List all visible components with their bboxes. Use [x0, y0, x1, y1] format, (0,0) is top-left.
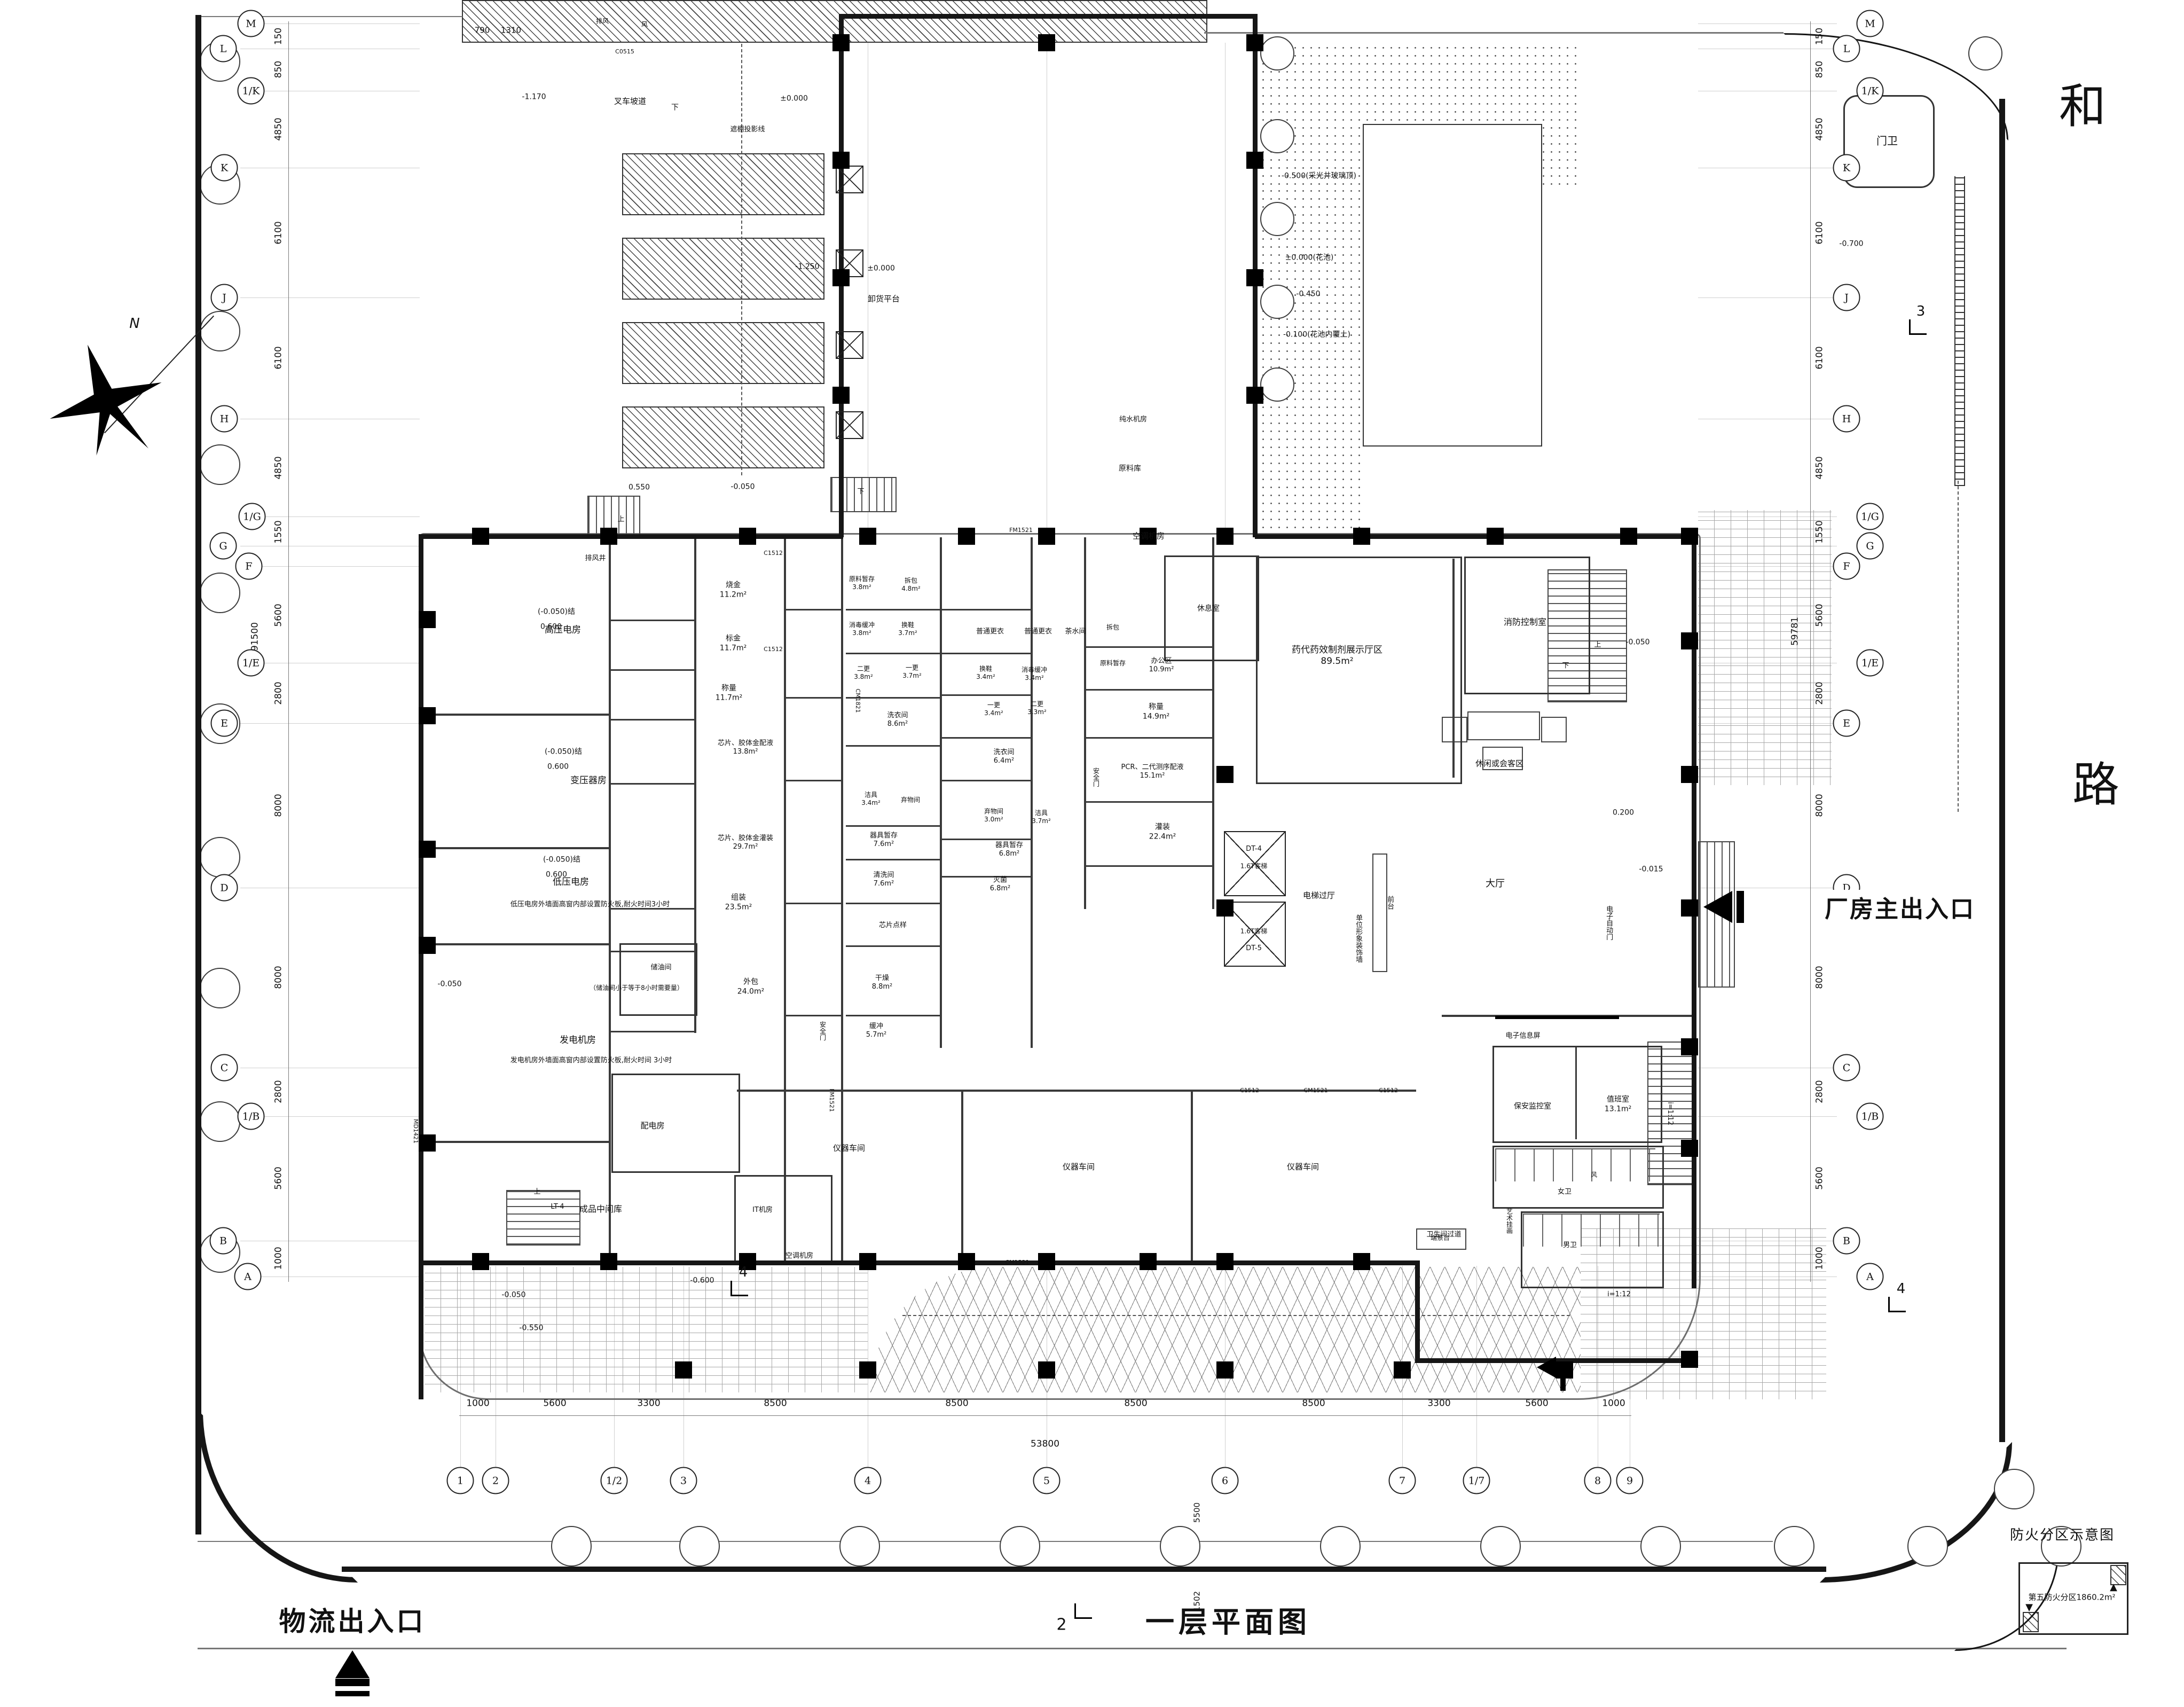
dimension-label: 790 [475, 26, 490, 36]
dimension-label: 2800 [1814, 682, 1825, 704]
grid-bubble: K [211, 154, 238, 182]
tree-icon [200, 968, 240, 1008]
tree-icon [200, 837, 240, 878]
partition-wall [421, 1141, 609, 1143]
level-mark: ±0.000(花池) [1285, 253, 1334, 263]
room-label: 清洗间 7.6m² [873, 871, 894, 889]
tree-icon [1160, 1526, 1200, 1567]
wall [419, 1260, 1420, 1265]
room-note: 低压电房外墙面高窗内部设置防火板,耐火时间3小时 [510, 901, 670, 909]
partition-wall [421, 714, 609, 716]
partition-wall [942, 653, 1031, 654]
grid-axis-line [1698, 24, 1837, 24]
dimension-label: 1000 [273, 1247, 284, 1270]
dimension-label: 1000 [466, 1398, 489, 1409]
grid-axis-line [240, 546, 420, 546]
partition-wall [846, 653, 940, 654]
structural-column [1216, 1253, 1234, 1270]
structural-column [1038, 528, 1055, 545]
annotation: LT-4 [551, 1203, 564, 1211]
room-label: 弃物间 [901, 796, 920, 804]
grid-bubble: 1/K [238, 77, 265, 105]
structural-column [1216, 1361, 1234, 1379]
dimension-label: 6100 [273, 346, 284, 369]
dimension-label: 8500 [764, 1398, 787, 1409]
room-label: 弃物间 3.0m² [984, 808, 1003, 824]
level-mark: (-0.050)结 [538, 607, 575, 617]
room-label: 低压电房 [553, 876, 589, 888]
dimension-label: 1000 [1602, 1398, 1625, 1409]
grid-bubble: F [235, 553, 263, 580]
room-label: 成品中间库 [579, 1204, 622, 1215]
section-mark: 3 [1916, 303, 1926, 320]
annotation: MD1421 [412, 1119, 419, 1144]
partition-wall [1086, 865, 1212, 867]
grid-axis-line [240, 566, 420, 567]
dimension-label: 1310 [501, 26, 521, 36]
dimension-label: 1550 [273, 520, 284, 543]
level-mark: (-0.050)结 [545, 747, 582, 757]
partition-wall [611, 669, 694, 671]
grid-bubble: G [210, 533, 237, 560]
landscape-dotted-area [1259, 187, 1361, 533]
level-mark: (-0.050)结 [543, 855, 580, 865]
room-label: 休闲或会客区 [1475, 759, 1523, 769]
annotation: 风 [641, 21, 648, 29]
solid-marker [1737, 891, 1744, 923]
dimension-label: 5600 [1814, 1166, 1825, 1189]
dimension-total: 91500 [249, 622, 261, 651]
level-mark: -0.600 [690, 1276, 714, 1286]
room-label: 洁具 3.4m² [861, 791, 881, 807]
grid-bubble: M [1857, 10, 1884, 37]
room-label: 药代药效制剂展示厅区 89.5m² [1292, 645, 1382, 668]
grid-axis-line [868, 43, 868, 539]
annotation: 卸货平台 [868, 294, 900, 304]
tree-icon [1260, 202, 1294, 236]
structural-column [1353, 528, 1370, 545]
tree-icon [200, 573, 240, 613]
partition-wall [786, 780, 841, 781]
road-corner-arc [198, 1410, 358, 1583]
reference-line [1204, 32, 1784, 34]
grid-axis-line [1698, 1116, 1837, 1117]
dimension-label: 5500 [1192, 1502, 1203, 1523]
grid-bubble: 4 [854, 1467, 882, 1494]
grid-bubble: C [1833, 1054, 1860, 1082]
grid-bubble: 1/E [238, 649, 265, 677]
level-mark: -0.050 [501, 1290, 525, 1300]
door-window-code: C1512 [764, 550, 783, 557]
annotation: 风 [1591, 1171, 1597, 1179]
tree-icon [200, 311, 240, 351]
annotation: 下 [1562, 662, 1569, 670]
grid-bubble: J [211, 284, 238, 311]
level-mark: -1.170 [522, 92, 546, 102]
level-mark: ±0.000 [780, 94, 808, 104]
dock-bay [622, 153, 824, 215]
fire-compartment-legend-title: 防火分区示意图 [2010, 1524, 2115, 1544]
grid-bubble: C [211, 1054, 238, 1082]
room-label: 芯片点样 [879, 921, 907, 930]
grid-bubble: L [1833, 35, 1860, 62]
dock-bay [622, 238, 824, 300]
partition-wall [786, 697, 841, 699]
grid-bubble: 1/B [238, 1103, 265, 1130]
grid-bubble: B [1833, 1227, 1860, 1255]
room-label: 一更 3.4m² [984, 701, 1003, 717]
room-label: 茶水间 [1065, 628, 1086, 636]
dimension-label: 4850 [1814, 456, 1825, 479]
north-arrow-icon [32, 326, 179, 474]
dimension-label: 8000 [1814, 966, 1825, 989]
structural-column [1681, 1351, 1698, 1368]
dimension-label: 5600 [1525, 1398, 1548, 1409]
room-note: （储油间小于等于8小时需要量） [590, 984, 684, 992]
dimension-label: 5600 [273, 604, 284, 627]
grid-bubble: E [1833, 710, 1860, 737]
structural-column [1246, 152, 1263, 169]
dashed-projection-line [741, 44, 742, 475]
tree-icon [1320, 1526, 1361, 1567]
level-mark: 0.550 [629, 483, 650, 492]
wall [1999, 99, 2005, 1442]
dimension-total: 53800 [1031, 1438, 1059, 1450]
grid-bubble: F [1833, 553, 1860, 580]
grid-bubble: 5 [1033, 1467, 1060, 1494]
grid-bubble: A [234, 1263, 262, 1290]
room-outline [734, 1175, 832, 1265]
partition-wall [611, 620, 694, 621]
room-label: 一更 3.7m² [902, 664, 922, 680]
partition-wall [786, 609, 841, 610]
fire-compartment-zone-label: 第五防火分区1860.2m² [2028, 1592, 2115, 1603]
reference-line [195, 16, 462, 17]
structural-column [832, 152, 850, 169]
fence-icon [1954, 176, 1965, 486]
structural-column [600, 528, 617, 545]
structural-column [1216, 766, 1234, 783]
dimension-label: 8500 [945, 1398, 968, 1409]
grid-bubble: A [1857, 1263, 1884, 1290]
room-label: 男卫 [1563, 1241, 1577, 1250]
grid-bubble: D [211, 874, 238, 902]
grid-axis-line [1698, 419, 1837, 419]
level-mark: ±0.000 [867, 264, 895, 273]
structural-column [1140, 1253, 1157, 1270]
partition-wall [942, 694, 1031, 696]
room-label: 女卫 [1558, 1188, 1572, 1196]
room-label: 原料库 [1119, 464, 1141, 474]
room-label: 消防控制室 [1504, 617, 1546, 628]
structural-column [1487, 528, 1504, 545]
room-label: 灌装 22.4m² [1149, 823, 1176, 842]
structural-column [1681, 632, 1698, 649]
dimension-label: 8500 [1302, 1398, 1325, 1409]
annotation: 排风 [596, 18, 609, 26]
dimension-label: 6100 [273, 221, 284, 244]
structural-column [1038, 1361, 1055, 1379]
wall [195, 15, 201, 1534]
structural-column [1681, 1038, 1698, 1055]
room-label: 办公区 10.9m² [1149, 657, 1174, 675]
room-outline [611, 1074, 740, 1173]
structural-column [1681, 899, 1698, 917]
tree-icon [1000, 1526, 1040, 1567]
wall [342, 1567, 1826, 1572]
room-label: 仪器车间 [1063, 1162, 1095, 1172]
structural-column [419, 841, 436, 858]
structural-column [419, 707, 436, 724]
door-window-code: CM1521 [1005, 1259, 1029, 1266]
dashed-projection-line [1958, 481, 1959, 812]
tree-icon [1260, 285, 1294, 319]
tree-icon [839, 1526, 880, 1567]
grid-bubble: 1/7 [1463, 1467, 1490, 1494]
grid-axis-line [240, 516, 420, 517]
structural-column [958, 528, 975, 545]
room-label: 外包 24.0m² [737, 978, 764, 997]
structural-column [832, 387, 850, 404]
grid-bubble: G [1857, 533, 1884, 560]
dimension-label: 4850 [273, 118, 284, 140]
room-label: 洗衣间 8.6m² [887, 711, 908, 729]
partition-wall [1031, 537, 1033, 1048]
grid-axis-line [240, 168, 420, 168]
structural-column [675, 1361, 692, 1379]
partition-wall [611, 783, 694, 785]
guard-house-label: 门卫 [1876, 132, 1898, 148]
grid-axis-line [240, 49, 420, 49]
annotation: 下 [671, 103, 679, 113]
grid-bubble: 1/B [1857, 1103, 1884, 1130]
section-mark-bracket [1888, 1297, 1906, 1312]
dimension-label: 8500 [1124, 1398, 1147, 1409]
room-label: 大厅 [1486, 878, 1505, 890]
grid-axis-line [240, 1277, 420, 1277]
main-entrance-label: 厂房主出入口 [1825, 890, 1975, 924]
wall [419, 534, 423, 1399]
solid-marker [1560, 1367, 1566, 1391]
room-label: 保安监控室 [1514, 1102, 1551, 1111]
dimension-total: 59781 [1789, 617, 1801, 646]
room-label: 拆包 [1106, 624, 1119, 632]
tree-icon [200, 1101, 240, 1142]
partition-wall [611, 1031, 694, 1032]
structural-column [739, 528, 756, 545]
annotation: 叉车坡道 [614, 97, 646, 107]
level-mark: -0.050 [1625, 638, 1649, 647]
section-mark: 4 [1897, 1280, 1906, 1298]
annotation: 端景台 [1431, 1234, 1450, 1242]
tree-icon [1640, 1526, 1681, 1567]
logistics-entrance-arrow-icon [335, 1650, 370, 1678]
level-mark: -0.050 [730, 482, 755, 492]
grid-bubble: 7 [1389, 1467, 1416, 1494]
partition-wall [846, 745, 940, 747]
grid-axis-line [240, 91, 420, 91]
partition-wall [846, 945, 940, 947]
room-label: 二更 3.3m² [1027, 700, 1047, 716]
tree-icon [1260, 36, 1294, 71]
structural-column [1246, 34, 1263, 51]
structural-column [1681, 1140, 1698, 1157]
level-mark: -0.050 [437, 980, 461, 989]
structural-column [472, 1253, 489, 1270]
partition-wall [784, 537, 786, 1262]
dock-bay [622, 406, 824, 468]
grid-bubble: 2 [482, 1467, 509, 1494]
partition-wall [942, 839, 1031, 840]
dimension-label: 6100 [1814, 221, 1825, 244]
level-mark: -0.015 [1639, 865, 1663, 874]
structural-column [419, 1134, 436, 1152]
room-label: 值班室 13.1m² [1605, 1095, 1631, 1114]
grid-axis-line [240, 297, 420, 298]
room-label: 仪器车间 [1287, 1162, 1319, 1172]
room-label: 变压器房 [570, 775, 607, 786]
room-label: 缓冲 5.7m² [866, 1022, 887, 1040]
level-mark: -1.250 [795, 262, 819, 272]
room-label: 二更 3.8m² [854, 665, 873, 681]
room-label: 原料暂存 [1100, 660, 1126, 668]
reference-line [198, 1648, 2067, 1649]
road-name-char-2: 路 [2072, 747, 2119, 815]
dimension-label: 2800 [273, 682, 284, 704]
room-note: 发电机房外墙面高窗内部设置防火板,耐火时间 3小时 [510, 1056, 672, 1065]
door-window-code: C1512 [764, 646, 783, 653]
dimension-label: 6100 [1814, 346, 1825, 369]
partition-wall [1084, 537, 1086, 909]
dimension-label: 5600 [273, 1166, 284, 1189]
solid-marker [1495, 1016, 1619, 1019]
section-mark-bracket [1074, 1603, 1092, 1619]
dimension-label: 8000 [273, 966, 284, 989]
grid-bubble: B [210, 1227, 237, 1255]
room-label: 洗衣间 6.4m² [993, 748, 1014, 766]
structural-column [600, 1253, 617, 1270]
reference-line [459, 1415, 1631, 1416]
room-label: 洁具 3.7m² [1032, 809, 1051, 825]
annotation: i=1:12 [1607, 1290, 1631, 1299]
main-entrance-arrow-icon [1703, 891, 1732, 923]
room-label: 称量 14.9m² [1143, 703, 1169, 722]
partition-wall [846, 903, 940, 904]
grid-bubble: 1/K [1857, 77, 1884, 105]
partition-wall [940, 537, 942, 1048]
grid-bubble: L [210, 35, 237, 62]
dimension-label: 850 [273, 61, 284, 78]
grid-bubble: 9 [1616, 1467, 1644, 1494]
grid-bubble: 8 [1584, 1467, 1612, 1494]
wall [1415, 1260, 1420, 1363]
room-label: 烧金 11.2m² [720, 581, 747, 600]
grid-axis-line [240, 24, 420, 24]
level-mark: -0.700 [1839, 239, 1863, 249]
dimension-label: 3300 [637, 1398, 660, 1409]
tree-icon [1994, 1469, 2034, 1509]
dimension-label: 3300 [1427, 1398, 1450, 1409]
structural-column [419, 937, 436, 954]
grid-axis-line [1698, 168, 1837, 168]
room-label: 配电房 [640, 1121, 664, 1131]
structural-column [1681, 528, 1698, 545]
tree-icon [1968, 36, 2002, 71]
level-mark: -0.550 [519, 1324, 543, 1333]
grid-bubble: J [1833, 284, 1860, 311]
level-mark: -0.450 [1296, 289, 1320, 299]
structural-column [1246, 269, 1263, 286]
room-label: 原料暂存 3.8m² [849, 575, 875, 591]
fire-legend-arrow: ▼ [2025, 1602, 2033, 1614]
shaft-x-box [836, 166, 863, 193]
grid-bubble: 1/G [239, 503, 266, 530]
grid-axis-line [240, 1068, 420, 1068]
room-label: 干燥 8.8m² [872, 974, 893, 992]
structural-column [832, 34, 850, 51]
dimension-label: 5600 [543, 1398, 566, 1409]
room-label: 消毒缓冲 3.8m² [849, 621, 875, 637]
structural-column [859, 1253, 876, 1270]
grid-axis-line [1698, 1068, 1837, 1068]
room-label: IT机房 [752, 1206, 773, 1215]
room-label: 换鞋 3.4m² [976, 665, 995, 681]
dock-bay [622, 322, 824, 384]
partition-wall [942, 609, 1031, 610]
dimension-label: 850 [1814, 61, 1825, 78]
grid-bubble: 1/E [1857, 649, 1884, 677]
room-label: 标金 11.7m² [720, 635, 747, 653]
room-label: PCR、二代测序配液 15.1m² [1121, 763, 1184, 781]
door-window-code: FM1521 [1009, 527, 1033, 534]
dimension-label: 8000 [273, 794, 284, 817]
annotation: 电子自动门 [1604, 906, 1613, 941]
road-name-char-1: 和 [2059, 69, 2106, 137]
room-label: 换鞋 3.7m² [898, 621, 917, 637]
logistics-entrance-label: 物流出入口 [279, 1600, 426, 1639]
annotation: 上 [1594, 641, 1601, 649]
partition-wall [942, 876, 1031, 878]
partition-wall [942, 780, 1031, 781]
room-label: 拆包 4.8m² [901, 577, 921, 593]
room-label: 普通更衣 [976, 628, 1004, 636]
grid-bubble: M [238, 10, 265, 37]
tree-icon [1260, 367, 1294, 402]
grid-axis-line [240, 1241, 420, 1241]
room-label: 消毒缓冲 3.4m² [1022, 666, 1047, 682]
level-mark: -0.500(采光井玻璃顶) [1282, 171, 1356, 181]
grid-axis-line [240, 419, 420, 419]
partition-wall [611, 719, 694, 721]
partition-wall [1086, 689, 1212, 691]
annotation: 遮棚投影线 [730, 126, 765, 134]
section-mark-bracket [730, 1281, 748, 1296]
room-label: 排风井 [585, 554, 606, 563]
structural-column [419, 611, 436, 628]
partition-wall [786, 903, 841, 904]
level-mark: -0.100(花池内覆土) [1283, 330, 1350, 340]
grid-bubble: 3 [670, 1467, 697, 1494]
door-window-code: C1512 [1379, 1087, 1398, 1094]
structural-column [1353, 1253, 1370, 1270]
grid-bubble: E [211, 710, 238, 737]
room-label: 1.6T客梯 [1240, 928, 1267, 936]
partition-wall [421, 943, 609, 945]
structural-column [472, 528, 489, 545]
partition-wall [846, 825, 940, 827]
south-entrance-arrow-icon [1537, 1357, 1556, 1378]
room-label: 空调机房 [785, 1252, 813, 1260]
